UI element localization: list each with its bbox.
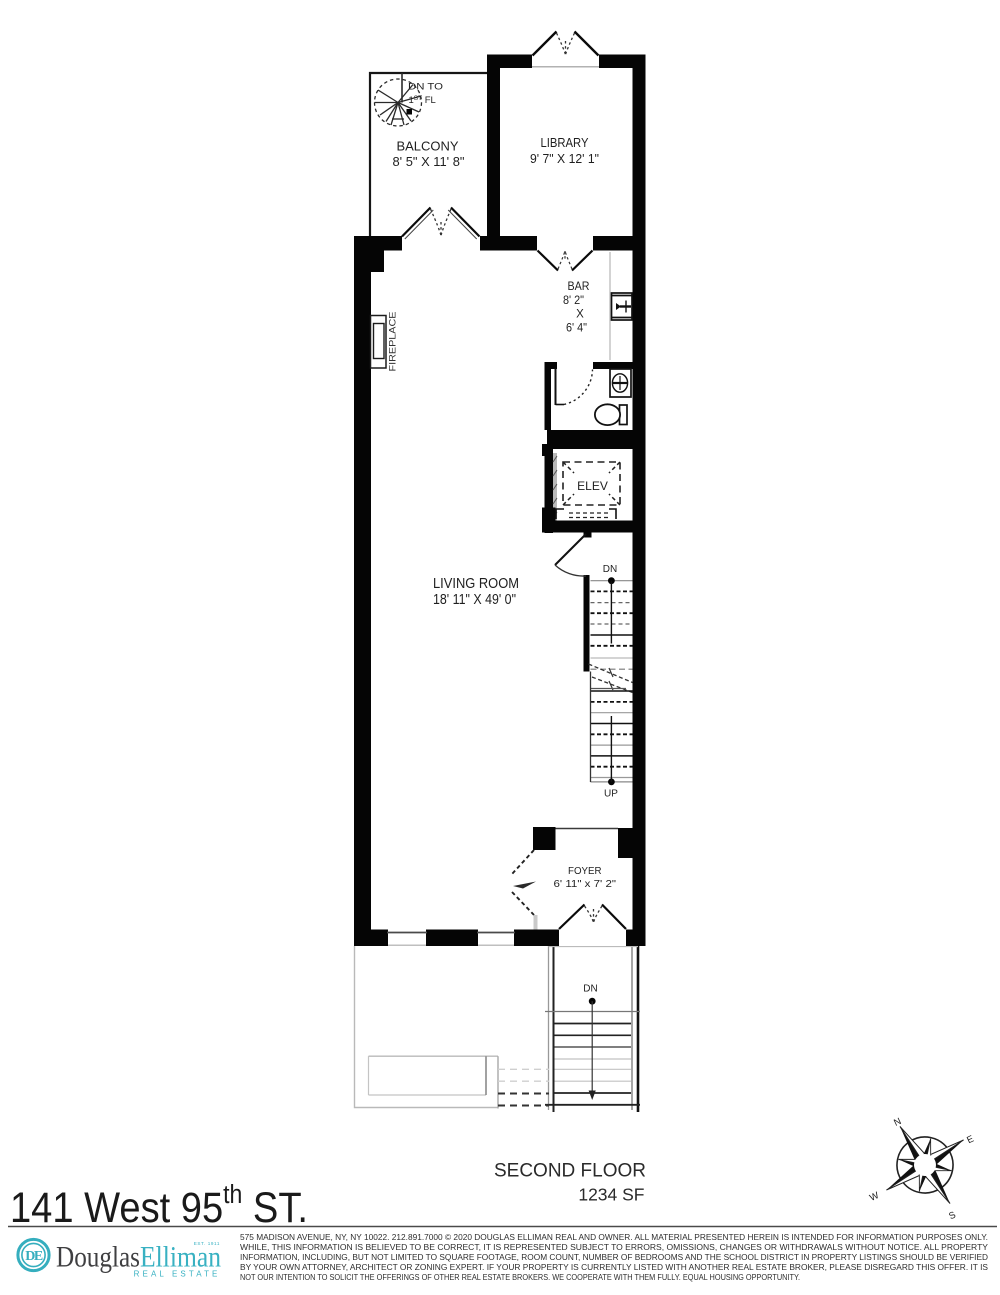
svg-text:SECOND FLOOR: SECOND FLOOR [494, 1161, 646, 1182]
svg-text:DN: DN [583, 984, 597, 995]
svg-text:6' 4": 6' 4" [566, 323, 587, 335]
svg-text:BY YOUR OWN ATTORNEY, ARCHITEC: BY YOUR OWN ATTORNEY, ARCHITECT OR ZONIN… [240, 1263, 988, 1272]
svg-text:UP: UP [604, 789, 618, 800]
svg-text:575 MADISON AVENUE, NY, NY 100: 575 MADISON AVENUE, NY, NY 10022. 212.89… [240, 1233, 988, 1242]
svg-text:INFORMATION, INCLUDING, BUT NO: INFORMATION, INCLUDING, BUT NOT LIMITED … [240, 1253, 988, 1262]
svg-text:DN TO: DN TO [408, 82, 443, 93]
svg-text:LIBRARY: LIBRARY [541, 135, 589, 150]
svg-text:6' 11" x 7' 2": 6' 11" x 7' 2" [554, 878, 617, 890]
svg-text:BAR: BAR [568, 281, 590, 293]
svg-text:REAL ESTATE: REAL ESTATE [134, 1270, 221, 1279]
svg-text:9' 7" X 12' 1": 9' 7" X 12' 1" [530, 151, 599, 166]
svg-text:DN: DN [603, 564, 617, 575]
svg-text:WHILE, THIS INFORMATION IS BEL: WHILE, THIS INFORMATION IS BELIEVED TO B… [240, 1243, 989, 1252]
svg-text:LIVING ROOM: LIVING ROOM [433, 576, 519, 592]
svg-text:1234 SF: 1234 SF [578, 1185, 644, 1205]
svg-text:ELEV: ELEV [577, 479, 608, 493]
svg-text:NOT OUR INTENTION TO SOLICIT T: NOT OUR INTENTION TO SOLICIT THE OFFERIN… [240, 1273, 800, 1282]
svg-text:FIREPLACE: FIREPLACE [388, 311, 398, 371]
svg-text:FOYER: FOYER [568, 865, 602, 877]
svg-text:8' 5" X 11' 8": 8' 5" X 11' 8" [393, 154, 465, 169]
svg-text:8' 2": 8' 2" [563, 295, 584, 307]
svg-text:X: X [576, 309, 584, 321]
svg-text:1ST FL: 1ST FL [409, 95, 436, 106]
svg-text:18' 11" X 49' 0": 18' 11" X 49' 0" [433, 592, 516, 608]
svg-text:141 West 95th ST.: 141 West 95th ST. [10, 1181, 308, 1232]
svg-text:DE: DE [25, 1249, 43, 1264]
svg-text:EST. 1911: EST. 1911 [194, 1241, 220, 1246]
svg-text:BALCONY: BALCONY [397, 139, 459, 154]
